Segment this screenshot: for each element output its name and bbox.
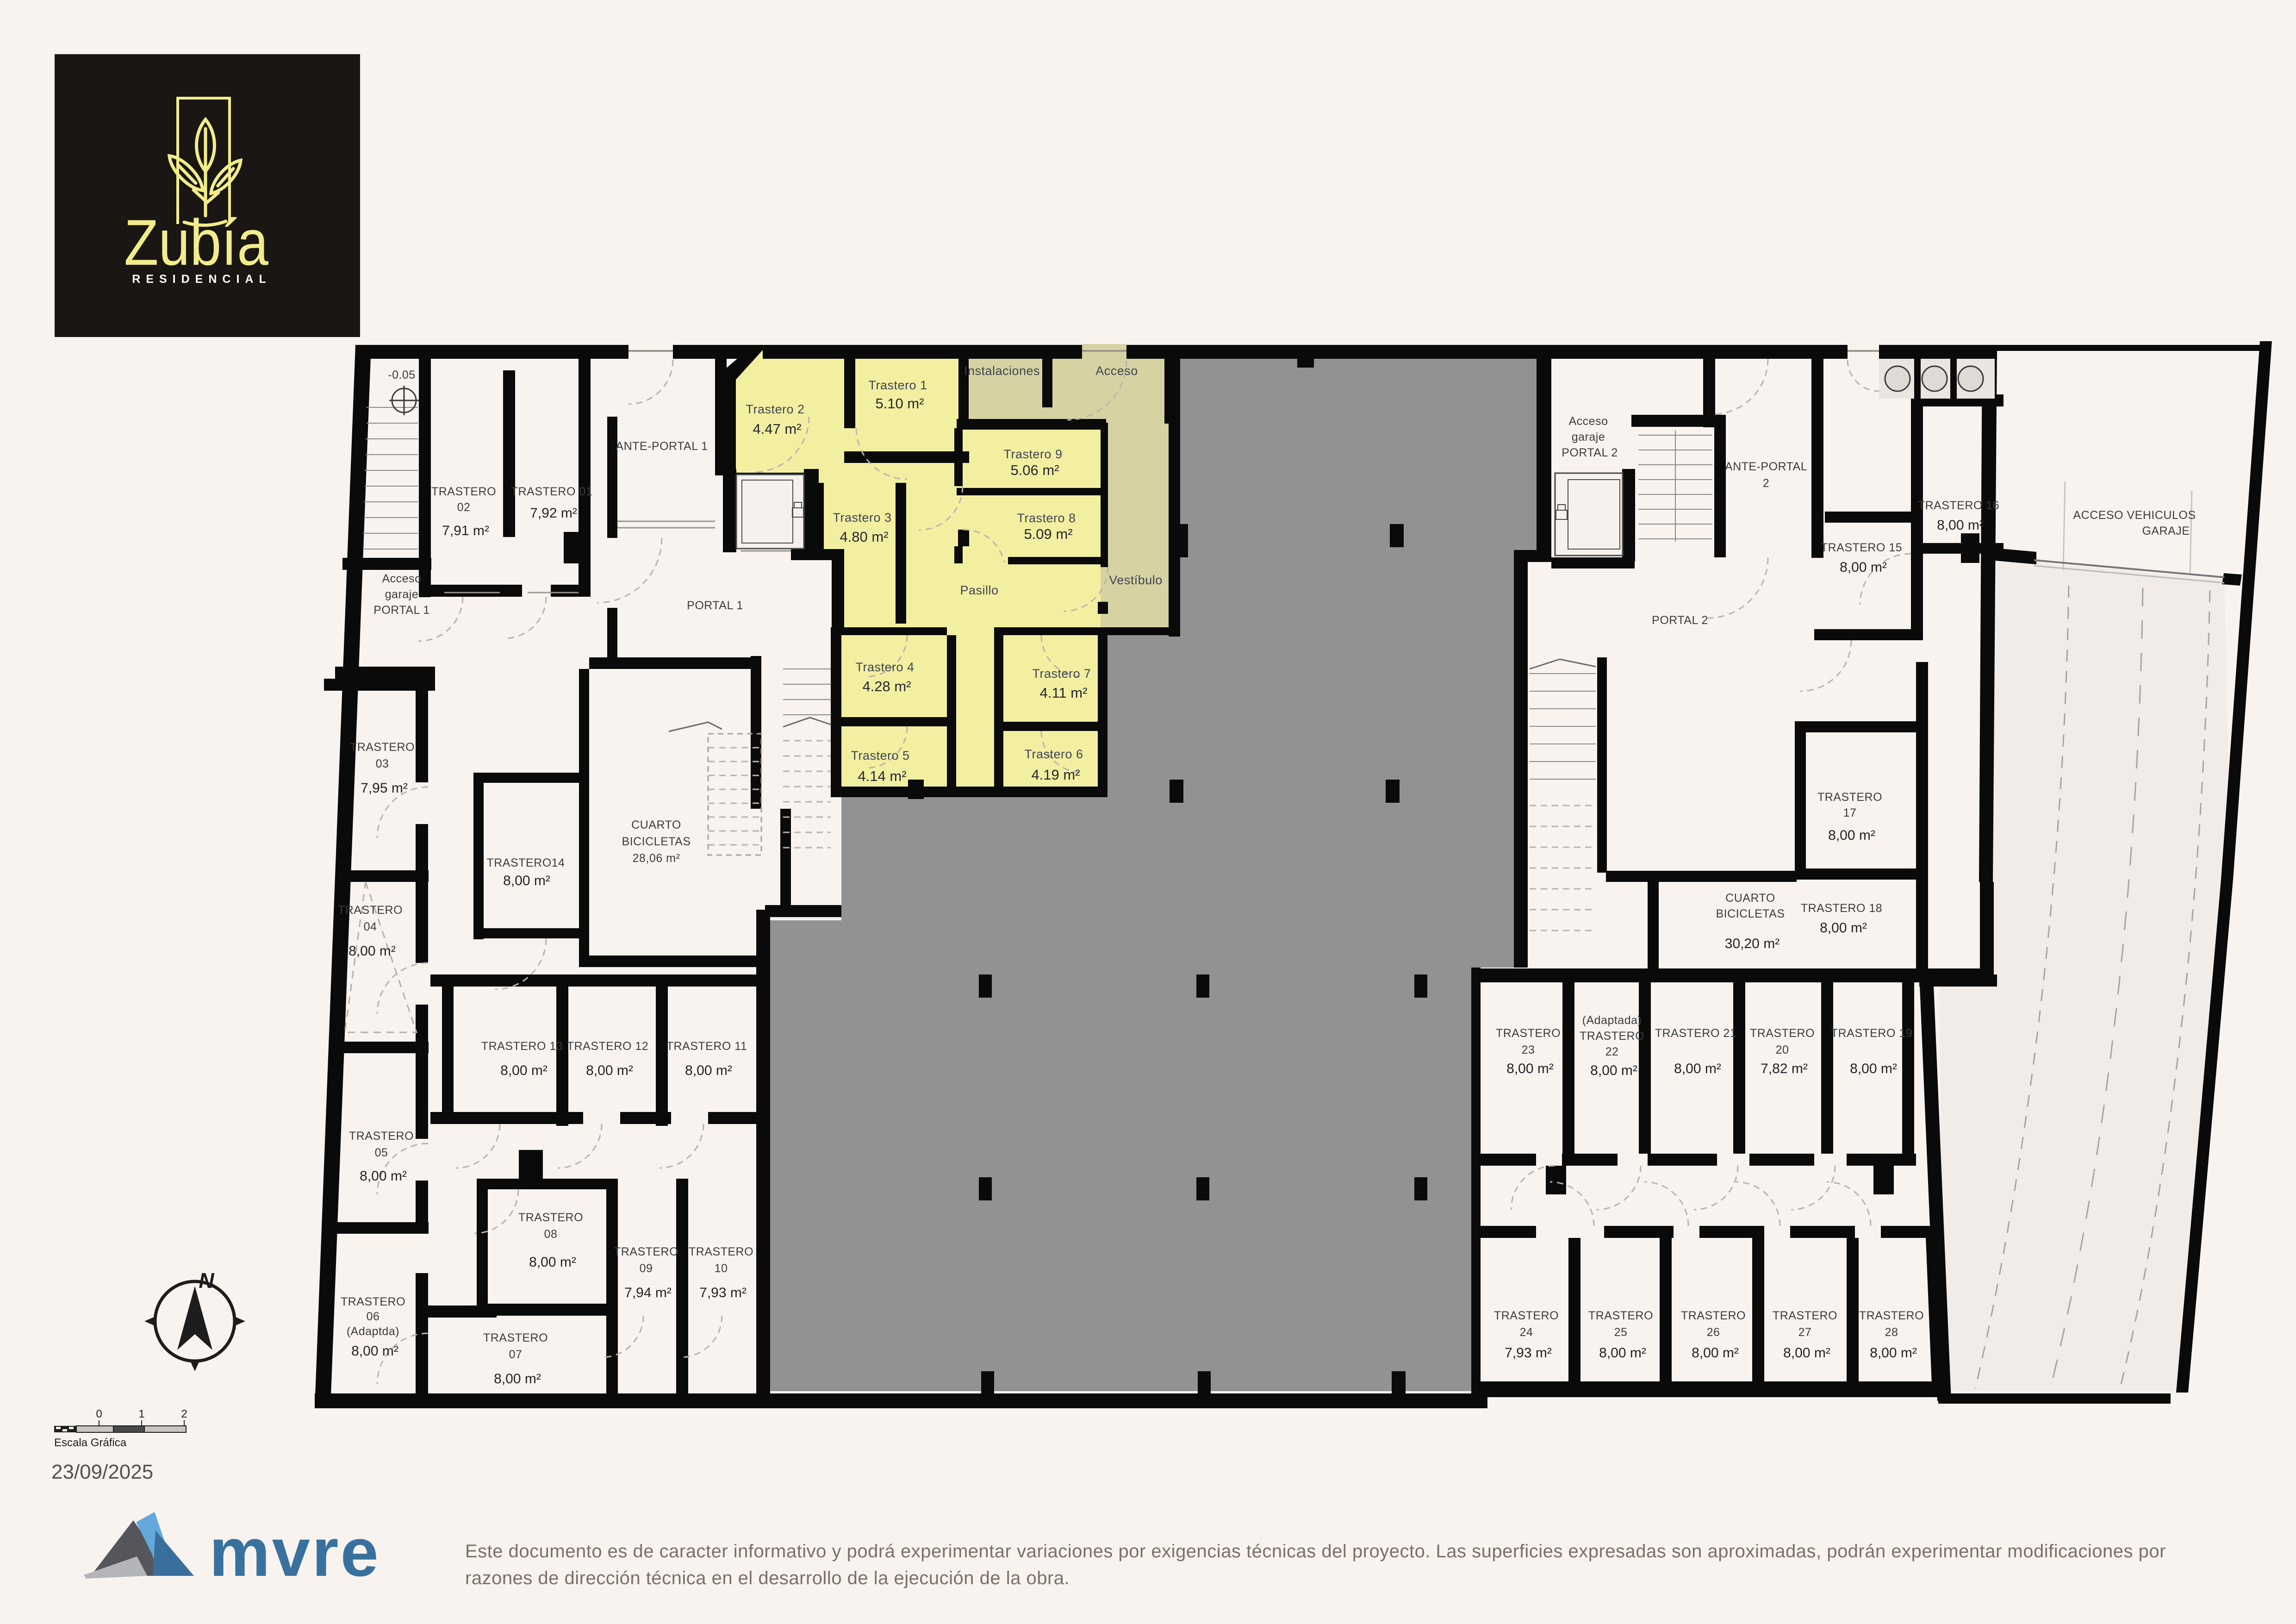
- svg-text:8,00 m²: 8,00 m²: [1590, 1063, 1637, 1078]
- svg-text:8,00 m²: 8,00 m²: [1599, 1345, 1646, 1361]
- svg-text:TRASTERO: TRASTERO: [1496, 1027, 1561, 1040]
- svg-text:27: 27: [1798, 1326, 1812, 1339]
- svg-text:TRASTERO: TRASTERO: [349, 1130, 414, 1143]
- svg-text:TRASTERO: TRASTERO: [431, 485, 496, 498]
- svg-text:PORTAL 2: PORTAL 2: [1652, 614, 1708, 627]
- svg-text:4.19 m²: 4.19 m²: [1031, 767, 1080, 783]
- svg-text:(Adaptada): (Adaptada): [1582, 1014, 1642, 1027]
- svg-text:06: 06: [367, 1310, 380, 1323]
- svg-text:09: 09: [640, 1262, 653, 1275]
- svg-text:4.28 m²: 4.28 m²: [862, 678, 911, 694]
- svg-text:Acceso: Acceso: [1095, 364, 1138, 378]
- svg-text:28,06 m²: 28,06 m²: [633, 852, 680, 865]
- svg-text:TRASTERO 12: TRASTERO 12: [567, 1040, 648, 1053]
- svg-text:8,00 m²: 8,00 m²: [685, 1063, 732, 1078]
- svg-text:TRASTERO 19: TRASTERO 19: [1831, 1027, 1912, 1040]
- svg-text:8,00 m²: 8,00 m²: [500, 1063, 548, 1078]
- svg-text:7,95 m²: 7,95 m²: [361, 781, 408, 796]
- svg-text:TRASTERO: TRASTERO: [1681, 1309, 1746, 1322]
- svg-text:TRASTERO: TRASTERO: [1588, 1309, 1653, 1322]
- svg-text:8,00 m²: 8,00 m²: [1870, 1345, 1917, 1361]
- svg-text:TRASTERO: TRASTERO: [350, 741, 415, 754]
- svg-text:TRASTERO: TRASTERO: [341, 1295, 405, 1308]
- svg-text:23/09/2025: 23/09/2025: [51, 1461, 153, 1483]
- svg-text:Escala Gráfica: Escala Gráfica: [54, 1437, 127, 1449]
- svg-text:TRASTERO 16: TRASTERO 16: [1918, 499, 1999, 512]
- svg-text:TRASTERO 18: TRASTERO 18: [1801, 902, 1882, 915]
- svg-text:Trastero 4: Trastero 4: [855, 660, 914, 674]
- svg-text:04: 04: [364, 920, 377, 933]
- svg-text:8,00 m²: 8,00 m²: [529, 1255, 576, 1270]
- svg-text:1: 1: [138, 1408, 144, 1420]
- svg-text:7,92 m²: 7,92 m²: [530, 506, 577, 521]
- svg-text:7,93 m²: 7,93 m²: [1505, 1345, 1552, 1361]
- svg-text:TRASTERO: TRASTERO: [1494, 1309, 1559, 1322]
- svg-text:RESIDENCIAL: RESIDENCIAL: [132, 273, 271, 286]
- svg-text:7,91 m²: 7,91 m²: [442, 523, 489, 538]
- svg-text:8,00 m²: 8,00 m²: [1820, 920, 1867, 936]
- svg-text:8,00 m²: 8,00 m²: [1506, 1061, 1554, 1076]
- svg-text:garaje: garaje: [1572, 431, 1605, 443]
- svg-text:8,00 m²: 8,00 m²: [586, 1063, 633, 1078]
- svg-text:5.09 m²: 5.09 m²: [1024, 526, 1072, 542]
- svg-text:TRASTERO14: TRASTERO14: [487, 856, 565, 869]
- svg-text:10: 10: [715, 1262, 728, 1275]
- svg-text:CUARTO: CUARTO: [631, 818, 681, 831]
- svg-text:7,94 m²: 7,94 m²: [624, 1285, 672, 1300]
- svg-text:8,00 m²: 8,00 m²: [1850, 1061, 1897, 1076]
- svg-text:ANTE-PORTAL: ANTE-PORTAL: [1725, 460, 1807, 473]
- svg-text:TRASTERO: TRASTERO: [518, 1211, 583, 1224]
- svg-text:PORTAL 1: PORTAL 1: [373, 604, 430, 617]
- svg-text:4.47 m²: 4.47 m²: [753, 421, 801, 437]
- svg-text:Trastero 2: Trastero 2: [746, 402, 804, 416]
- svg-text:BICICLETAS: BICICLETAS: [1716, 907, 1785, 920]
- svg-text:GARAJE: GARAJE: [2142, 525, 2190, 537]
- svg-text:Trastero 8: Trastero 8: [1017, 511, 1076, 525]
- svg-text:28: 28: [1885, 1326, 1898, 1339]
- svg-text:Zubía: Zubía: [124, 206, 268, 279]
- svg-text:Vestíbulo: Vestíbulo: [1109, 573, 1163, 587]
- svg-text:Trastero 6: Trastero 6: [1024, 747, 1083, 761]
- svg-text:20: 20: [1776, 1043, 1789, 1056]
- svg-text:ANTE-PORTAL 1: ANTE-PORTAL 1: [616, 440, 708, 453]
- svg-text:N: N: [199, 1268, 214, 1293]
- svg-text:Trastero 5: Trastero 5: [851, 749, 909, 762]
- svg-text:02: 02: [457, 501, 471, 514]
- svg-text:4.14 m²: 4.14 m²: [858, 768, 906, 784]
- svg-text:ACCESO VEHICULOS: ACCESO VEHICULOS: [2073, 509, 2196, 522]
- svg-text:TRASTERO: TRASTERO: [1859, 1309, 1924, 1322]
- svg-text:4.11 m²: 4.11 m²: [1040, 685, 1088, 701]
- svg-text:25: 25: [1614, 1326, 1628, 1339]
- svg-text:TRASTERO: TRASTERO: [338, 904, 403, 917]
- svg-text:TRASTERO: TRASTERO: [1773, 1309, 1837, 1322]
- svg-text:Este documento es de caracter: Este documento es de caracter informativ…: [465, 1541, 2166, 1562]
- svg-text:30,20 m²: 30,20 m²: [1725, 936, 1780, 951]
- svg-text:TRASTERO 21: TRASTERO 21: [1655, 1027, 1736, 1040]
- svg-text:Trastero 3: Trastero 3: [833, 511, 891, 525]
- svg-text:razones de dirección técnica e: razones de dirección técnica en el desar…: [465, 1568, 1070, 1588]
- svg-text:PORTAL 1: PORTAL 1: [687, 599, 743, 612]
- svg-text:TRASTERO: TRASTERO: [614, 1245, 678, 1258]
- svg-text:Pasillo: Pasillo: [960, 583, 998, 597]
- svg-text:4.80 m²: 4.80 m²: [840, 529, 888, 545]
- svg-text:5.10 m²: 5.10 m²: [875, 395, 924, 412]
- svg-text:TRASTERO: TRASTERO: [1750, 1027, 1815, 1040]
- svg-text:TRASTERO 01: TRASTERO 01: [511, 485, 592, 498]
- svg-text:Trastero 1: Trastero 1: [868, 378, 927, 392]
- svg-text:0: 0: [96, 1408, 102, 1420]
- svg-text:8,00 m²: 8,00 m²: [1937, 518, 1984, 533]
- svg-text:(Adaptda): (Adaptda): [347, 1325, 399, 1338]
- svg-text:TRASTERO 15: TRASTERO 15: [1821, 541, 1902, 554]
- svg-text:8,00 m²: 8,00 m²: [1840, 560, 1887, 575]
- svg-text:24: 24: [1520, 1326, 1533, 1339]
- svg-text:PORTAL 2: PORTAL 2: [1562, 446, 1618, 459]
- svg-text:8,00 m²: 8,00 m²: [348, 943, 396, 959]
- svg-text:8,00 m²: 8,00 m²: [1674, 1061, 1721, 1076]
- svg-text:22: 22: [1605, 1045, 1619, 1058]
- svg-text:Trastero 7: Trastero 7: [1032, 667, 1091, 681]
- svg-text:-0.05: -0.05: [388, 369, 415, 381]
- svg-text:8,00 m²: 8,00 m²: [503, 873, 550, 888]
- svg-text:Trastero 9: Trastero 9: [1003, 447, 1062, 461]
- svg-text:Acceso: Acceso: [1569, 415, 1608, 428]
- svg-text:TRASTERO: TRASTERO: [689, 1245, 753, 1258]
- svg-text:TRASTERO: TRASTERO: [483, 1331, 548, 1344]
- svg-text:mvre: mvre: [209, 1514, 380, 1591]
- svg-text:7,93 m²: 7,93 m²: [699, 1285, 747, 1300]
- svg-text:2: 2: [1763, 477, 1769, 490]
- svg-text:05: 05: [375, 1146, 388, 1159]
- svg-text:5.06 m²: 5.06 m²: [1010, 462, 1059, 478]
- svg-text:08: 08: [544, 1228, 558, 1241]
- svg-text:8,00 m²: 8,00 m²: [360, 1168, 407, 1184]
- svg-text:garaje: garaje: [385, 588, 419, 601]
- svg-text:Acceso: Acceso: [382, 572, 422, 585]
- svg-text:2: 2: [181, 1408, 187, 1420]
- svg-text:8,00 m²: 8,00 m²: [494, 1371, 541, 1387]
- svg-text:23: 23: [1522, 1043, 1535, 1056]
- svg-text:TRASTERO: TRASTERO: [1580, 1030, 1644, 1043]
- svg-text:TRASTERO 13: TRASTERO 13: [481, 1040, 563, 1053]
- svg-text:Instalaciones: Instalaciones: [964, 364, 1040, 378]
- svg-text:8,00 m²: 8,00 m²: [1828, 828, 1875, 843]
- svg-text:CUARTO: CUARTO: [1725, 892, 1775, 905]
- svg-text:TRASTERO: TRASTERO: [1817, 791, 1882, 804]
- svg-text:03: 03: [376, 757, 389, 770]
- svg-text:07: 07: [509, 1348, 523, 1361]
- svg-text:8,00 m²: 8,00 m²: [1783, 1345, 1830, 1361]
- svg-text:8,00 m²: 8,00 m²: [351, 1343, 398, 1359]
- svg-text:8,00 m²: 8,00 m²: [1692, 1345, 1739, 1361]
- svg-text:7,82 m²: 7,82 m²: [1761, 1061, 1808, 1076]
- svg-text:26: 26: [1707, 1326, 1720, 1339]
- svg-text:TRASTERO 11: TRASTERO 11: [666, 1040, 747, 1053]
- svg-text:17: 17: [1843, 806, 1857, 819]
- svg-text:BICICLETAS: BICICLETAS: [622, 835, 691, 848]
